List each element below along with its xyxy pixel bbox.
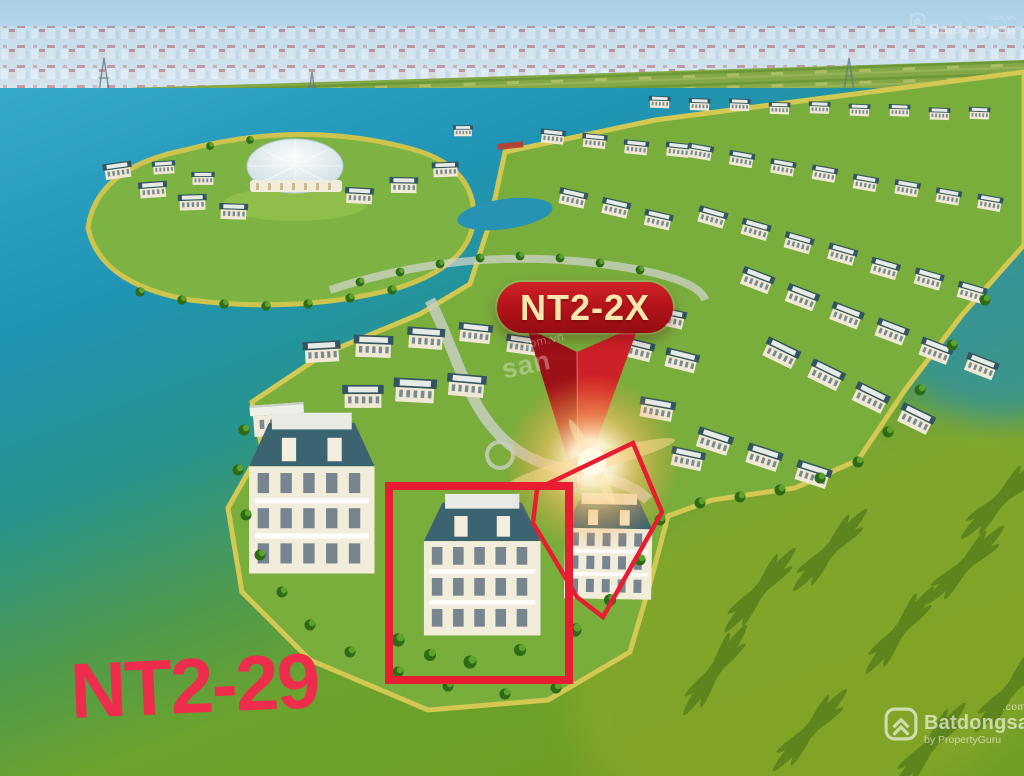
- listing-photo: NT2-2X NT2-29 .com.vn san .com.vn Batdon…: [0, 0, 1024, 776]
- watermark-bottom-right: .com.vn Batdongsan by PropertyGuru: [884, 702, 1024, 746]
- batdongsan-logo-icon: [910, 13, 925, 28]
- watermark-bottom-right-brand: Batdongsan: [924, 713, 1024, 734]
- unit-label-text: NT2-2X: [520, 287, 650, 329]
- lot-label: NT2-29: [69, 641, 320, 730]
- watermark-top-right: .com.vn Batdongsan: [910, 13, 1016, 39]
- watermark-top-right-brand: Batdongsan: [929, 22, 1016, 39]
- watermark-bottom-right-byline: by PropertyGuru: [924, 734, 1024, 746]
- secondary-highlight-outline: [520, 430, 670, 625]
- unit-label-pill: NT2-2X: [497, 282, 673, 333]
- batdongsan-logo-icon: [884, 707, 918, 741]
